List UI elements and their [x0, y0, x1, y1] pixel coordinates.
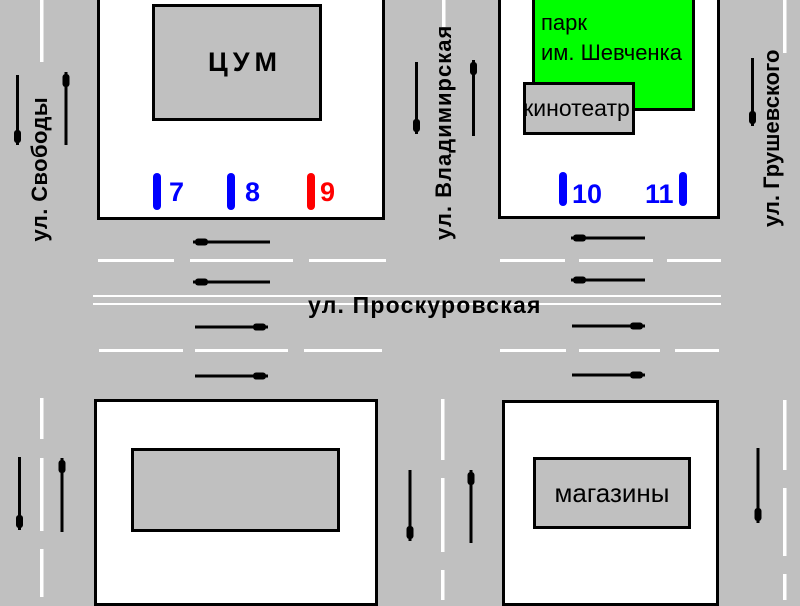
svg-text:ул. Проскуровская: ул. Проскуровская [308, 292, 542, 318]
svg-text:ул. Грушевского: ул. Грушевского [759, 50, 784, 227]
svg-text:ул. Свободы: ул. Свободы [27, 97, 52, 242]
svg-text:ул. Владимирская: ул. Владимирская [431, 25, 456, 240]
